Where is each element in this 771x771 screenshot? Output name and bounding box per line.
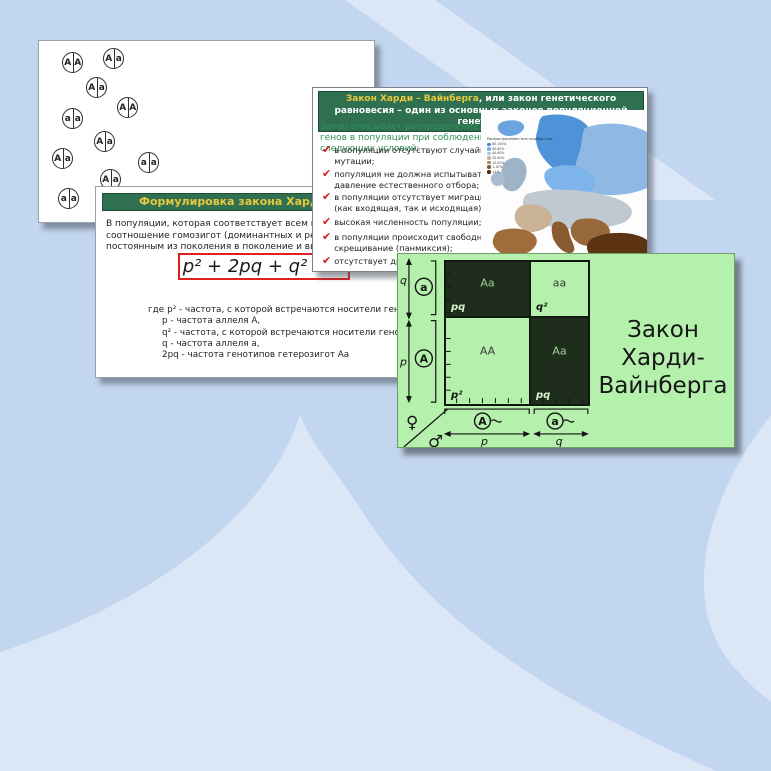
where-label: где [148,305,164,315]
allele-left: A [63,53,73,72]
bottom-allele-a-circle: a [551,415,558,428]
legend-swatch [487,152,491,156]
genotype-circle: Aa [86,77,107,98]
cell-frequency: pq [451,302,465,313]
cell-frequency: pq [536,390,550,401]
allele-right: A [128,98,138,117]
legend-label: <1% [492,170,500,174]
blue-eye-gene-map: Распространение гена голубых глаз 80-100… [481,110,647,271]
cell-genotype: AA [446,344,529,357]
bottom-q-label: q [556,435,563,448]
legend-label: 20-40% [492,156,504,160]
allele-right: a [69,189,79,208]
punnett-cell-Aa: Aapq [531,318,588,404]
condition-text: высокая численность популяции; [334,217,481,228]
allele-left: A [53,149,63,168]
condition-item: ✔в популяции происходит свободное скрещи… [322,232,500,253]
allele-right: a [114,49,124,68]
condition-text: в популяции происходит свободное скрещив… [334,232,500,253]
slide-law-title-highlight: Закон Харди – Вайнберга [346,94,479,104]
bottom-p-label: p [480,435,488,448]
genotype-circle: Aa [94,131,115,152]
square-slide-title: Закон Харди- Вайнберга [596,316,730,400]
allele-A-circle: A [420,352,429,365]
legend-label: 60-80% [492,147,504,151]
allele-right: a [73,109,83,128]
allele-right: a [63,149,73,168]
condition-text: в популяции отсутствует миграция (как вх… [334,192,500,213]
genotype-circle: AA [117,97,138,118]
cell-genotype: aa [531,276,588,289]
condition-item: ✔высокая численность популяции; [322,217,482,228]
axis-q-label: q [400,274,407,287]
checkmark-icon: ✔ [322,145,331,166]
allele-left: a [63,109,73,128]
genotype-circle: aa [62,108,83,129]
allele-left: A [87,78,97,97]
axis-p-label: p [399,355,407,368]
genotype-circle: AA [62,52,83,73]
legend-swatch [487,161,491,165]
female-symbol: ♀ [406,412,418,432]
checkmark-icon: ✔ [322,169,331,190]
punnett-square: Aapqaaq²AAp²Aapq [444,260,590,406]
cell-genotype: Aa [446,276,529,289]
legend-swatch [487,170,491,174]
checkmark-icon: ✔ [322,217,331,228]
legend-swatch [487,156,491,160]
checkmark-icon: ✔ [322,232,331,253]
condition-text: популяция не должна испытывать давление … [334,169,500,190]
allele-left: a [59,189,69,208]
condition-item: ✔в популяции отсутствуют случайные мутац… [322,145,500,166]
slide-punnett-square[interactable]: Aapqaaq²AAp²Aapq q p a A [397,253,735,448]
cell-genotype: Aa [531,344,588,357]
allele-left: A [95,132,105,151]
male-symbol: ♂ [428,431,443,448]
europe-map-graphic [481,110,647,271]
cell-frequency: p² [451,390,463,401]
genotype-circle: Aa [103,48,124,69]
checkmark-icon: ✔ [322,192,331,213]
cell-frequency: q² [536,302,548,313]
square-slide-title-line1: Закон Харди- [596,316,730,372]
checkmark-icon: ✔ [322,256,331,267]
punnett-cell-Aa: Aapq [446,262,531,318]
genotype-circle: aa [138,152,159,173]
punnett-cell-AA: AAp² [446,318,531,404]
allele-right: a [149,153,159,172]
legend-label: 40-60% [492,151,504,155]
legend-label: 10-20% [492,161,504,165]
map-legend-title: Распространение гена голубых глаз [487,137,547,141]
legend-swatch [487,165,491,169]
allele-left: A [104,49,114,68]
slide-law-conditions[interactable]: Закон Харди – Вайнберга, или закон генет… [312,87,648,272]
legend-swatch [487,147,491,151]
genotype-circle: Aa [52,148,73,169]
map-legend: Распространение гена голубых глаз 80-100… [487,137,547,174]
legend-swatch [487,143,491,147]
condition-item: ✔в популяции отсутствует миграция (как в… [322,192,500,213]
allele-left: A [118,98,128,117]
allele-left: a [139,153,149,172]
genotype-circle: aa [58,188,79,209]
allele-right: A [73,53,83,72]
legend-row: <1% [487,170,547,175]
square-slide-title-line2: Вайнберга [596,372,730,400]
allele-right: a [97,78,107,97]
allele-a-circle: a [420,281,427,294]
allele-right: a [105,132,115,151]
bottom-allele-A-circle: A [478,415,487,428]
punnett-cell-aa: aaq² [531,262,588,318]
condition-item: ✔популяция не должна испытывать давление… [322,169,500,190]
condition-text: в популяции отсутствуют случайные мутаци… [334,145,500,166]
legend-label: 80-100% [492,142,506,146]
legend-label: 1-10% [492,165,502,169]
